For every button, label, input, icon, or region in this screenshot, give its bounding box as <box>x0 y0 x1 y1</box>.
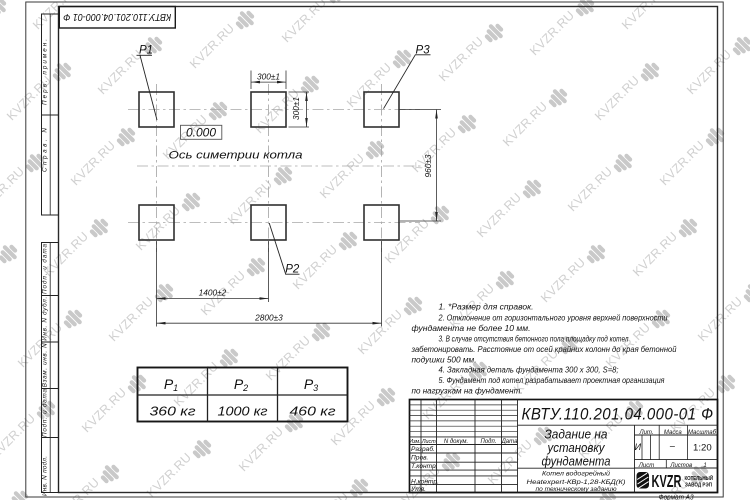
svg-text:KVZR.RU: KVZR.RU <box>15 320 65 370</box>
svg-text:КВТУ.110.201.04.000-01 Ф: КВТУ.110.201.04.000-01 Ф <box>63 11 171 23</box>
svg-text:460 кг: 460 кг <box>290 404 336 418</box>
svg-text:Подп. и дата: Подп. и дата <box>41 389 49 437</box>
svg-text:Лист: Лист <box>638 463 654 469</box>
svg-text:KVZR.RU: KVZR.RU <box>657 138 707 188</box>
svg-text:Формат А3: Формат А3 <box>659 492 694 500</box>
svg-text:Н.контр.: Н.контр. <box>411 478 439 485</box>
svg-text:КОТЕЛЬНЫЙ: КОТЕЛЬНЫЙ <box>685 474 714 482</box>
svg-text:Справ. N: Справ. N <box>42 128 49 172</box>
svg-text:KVZR: KVZR <box>652 471 682 491</box>
svg-text:KVZR.RU: KVZR.RU <box>0 164 27 214</box>
svg-text:2800±3: 2800±3 <box>254 312 283 322</box>
svg-text:KVZR.RU: KVZR.RU <box>592 73 642 123</box>
svg-text:по техническому заданию: по техническому заданию <box>536 485 617 493</box>
svg-text:фундамента: фундамента <box>542 455 611 469</box>
svg-text:KVZR.RU: KVZR.RU <box>187 21 237 71</box>
svg-text:1:20: 1:20 <box>693 442 712 453</box>
svg-text:KVZR.RU: KVZR.RU <box>538 255 588 305</box>
svg-text:Дата: Дата <box>501 439 518 445</box>
svg-text:Изм.: Изм. <box>409 439 421 445</box>
svg-text:KVZR.RU: KVZR.RU <box>619 0 669 32</box>
svg-text:Пров.: Пров. <box>411 455 429 462</box>
svg-text:960±3: 960±3 <box>423 154 433 177</box>
svg-text:Инв. N дубл.: Инв. N дубл. <box>41 297 49 341</box>
svg-text:Ось симетрии котла: Ось симетрии котла <box>169 149 303 161</box>
svg-text:Взам. инв. N: Взам. инв. N <box>42 343 49 387</box>
svg-text:KVZR.RU: KVZR.RU <box>301 489 351 500</box>
svg-text:ЗАВОД РЭП: ЗАВОД РЭП <box>685 482 712 488</box>
svg-text:KVZR.RU: KVZR.RU <box>52 475 102 500</box>
svg-text:Задание на: Задание на <box>545 428 608 442</box>
svg-text:Р2: Р2 <box>285 264 300 276</box>
svg-text:Масштаб: Масштаб <box>688 430 717 436</box>
svg-text:Перв. примен.: Перв. примен. <box>42 39 49 105</box>
svg-text:KVZR.RU: KVZR.RU <box>409 125 459 175</box>
svg-text:Листов: Листов <box>669 463 692 469</box>
svg-text:Т.контр.: Т.контр. <box>411 463 438 470</box>
svg-text:Р3: Р3 <box>416 44 431 56</box>
svg-text:Лит.: Лит. <box>638 430 653 436</box>
svg-text:KVZR.RU: KVZR.RU <box>355 307 405 357</box>
svg-text:Подп. и дата: Подп. и дата <box>41 244 49 294</box>
svg-text:Котел водогрейный: Котел водогрейный <box>542 469 610 477</box>
svg-text:KVZR.RU: KVZR.RU <box>68 138 118 188</box>
svg-text:KVZR.RU: KVZR.RU <box>695 294 745 344</box>
svg-text:KVZR.RU: KVZR.RU <box>317 151 367 201</box>
svg-text:KVZR.RU: KVZR.RU <box>684 47 734 97</box>
svg-text:1400±2: 1400±2 <box>199 288 227 298</box>
svg-text:KVZR.RU: KVZR.RU <box>106 294 156 344</box>
svg-text:300±1: 300±1 <box>291 97 301 120</box>
svg-text:KVZR.RU: KVZR.RU <box>474 190 524 240</box>
svg-text:4. Закладная деталь фундаме: 4. Закладная деталь фундамента 300 x 300… <box>439 365 620 375</box>
svg-text:Инв. N подл.: Инв. N подл. <box>41 456 49 496</box>
svg-text:1: 1 <box>703 463 706 469</box>
svg-text:5. Фундамент под котел раз: 5. Фундамент под котел разрабатывает про… <box>439 375 665 385</box>
svg-text:Р1: Р1 <box>139 44 153 56</box>
svg-text:1. *Размер для справок.: 1. *Размер для справок. <box>439 302 534 312</box>
svg-text:подушки 500 мм.: подушки 500 мм. <box>412 355 477 365</box>
svg-text:–: – <box>669 441 676 451</box>
svg-text:3. В случае отсутствия бет: 3. В случае отсутствия бетонного пола пл… <box>439 334 629 344</box>
svg-text:Р3: Р3 <box>304 376 318 393</box>
svg-text:И: И <box>635 442 642 452</box>
svg-text:KVZR.RU: KVZR.RU <box>382 216 432 266</box>
svg-text:Лист: Лист <box>421 439 436 445</box>
svg-text:КВТУ.110.201.04.000-01 Ф: КВТУ.110.201.04.000-01 Ф <box>522 406 714 424</box>
svg-text:KVZR.RU: KVZR.RU <box>133 203 183 253</box>
svg-text:KVZR.RU: KVZR.RU <box>79 385 129 435</box>
svg-text:фундамента не более 10 мм.: фундамента не более 10 мм. <box>412 323 531 333</box>
svg-text:KVZR.RU: KVZR.RU <box>630 229 680 279</box>
svg-text:N докум.: N докум. <box>444 439 468 445</box>
svg-text:Р1: Р1 <box>164 376 178 393</box>
svg-text:KVZR.RU: KVZR.RU <box>0 411 38 461</box>
svg-text:Heatexpert-КВр-1,28-КБД(К): Heatexpert-КВр-1,28-КБД(К) <box>527 479 626 486</box>
svg-text:Утв.: Утв. <box>410 486 426 493</box>
svg-text:300±1: 300±1 <box>257 71 280 81</box>
svg-text:по нагрузкам на фундамент.: по нагрузкам на фундамент. <box>412 386 523 396</box>
svg-text:KVZR.RU: KVZR.RU <box>236 424 286 474</box>
svg-text:забетонировать. Расстояние о: забетонировать. Расстояние от осей крайн… <box>411 344 677 354</box>
svg-text:0.000: 0.000 <box>186 128 217 140</box>
svg-text:360 кг: 360 кг <box>150 404 196 418</box>
svg-text:KVZR.RU: KVZR.RU <box>225 177 275 227</box>
svg-text:KVZR.RU: KVZR.RU <box>436 34 486 84</box>
svg-text:Подп.: Подп. <box>481 439 497 445</box>
svg-text:KVZR.RU: KVZR.RU <box>95 47 145 97</box>
svg-text:KVZR.RU: KVZR.RU <box>527 8 577 58</box>
svg-text:Р2: Р2 <box>234 376 248 393</box>
svg-text:установку: установку <box>547 441 606 455</box>
svg-text:KVZR.RU: KVZR.RU <box>41 229 91 279</box>
svg-text:2. Отклонение от горизонтал: 2. Отклонение от горизонтального уровня … <box>438 313 668 323</box>
svg-text:Разраб.: Разраб. <box>411 445 435 453</box>
svg-text:KVZR.RU: KVZR.RU <box>328 398 378 448</box>
svg-text:Масса: Масса <box>664 430 682 436</box>
svg-text:1000 кг: 1000 кг <box>218 404 268 418</box>
svg-text:KVZR.RU: KVZR.RU <box>565 164 615 214</box>
svg-text:KVZR.RU: KVZR.RU <box>500 99 550 149</box>
